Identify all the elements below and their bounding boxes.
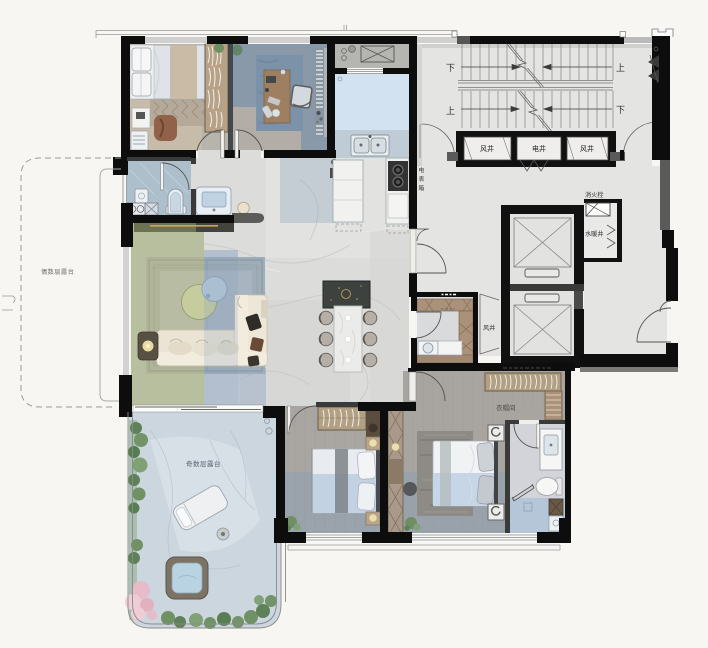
svg-text:电: 电	[419, 166, 425, 174]
svg-text:水暖井: 水暖井	[585, 230, 604, 238]
svg-text:奇数层露台: 奇数层露台	[186, 459, 221, 468]
svg-text:上: 上	[446, 106, 455, 116]
svg-text:表: 表	[419, 175, 425, 183]
svg-text:上: 上	[616, 63, 625, 73]
svg-text:风井: 风井	[580, 144, 594, 153]
svg-text:下: 下	[446, 63, 455, 73]
svg-text:下: 下	[616, 105, 625, 115]
svg-text:衣帽间: 衣帽间	[496, 403, 516, 412]
svg-text:风井: 风井	[483, 324, 495, 332]
svg-text:消火栓: 消火栓	[585, 191, 604, 199]
svg-text:电井: 电井	[532, 144, 546, 153]
svg-text:偶数层露台: 偶数层露台	[41, 268, 74, 276]
svg-text:风井: 风井	[480, 144, 494, 153]
svg-text:箱: 箱	[419, 184, 425, 192]
